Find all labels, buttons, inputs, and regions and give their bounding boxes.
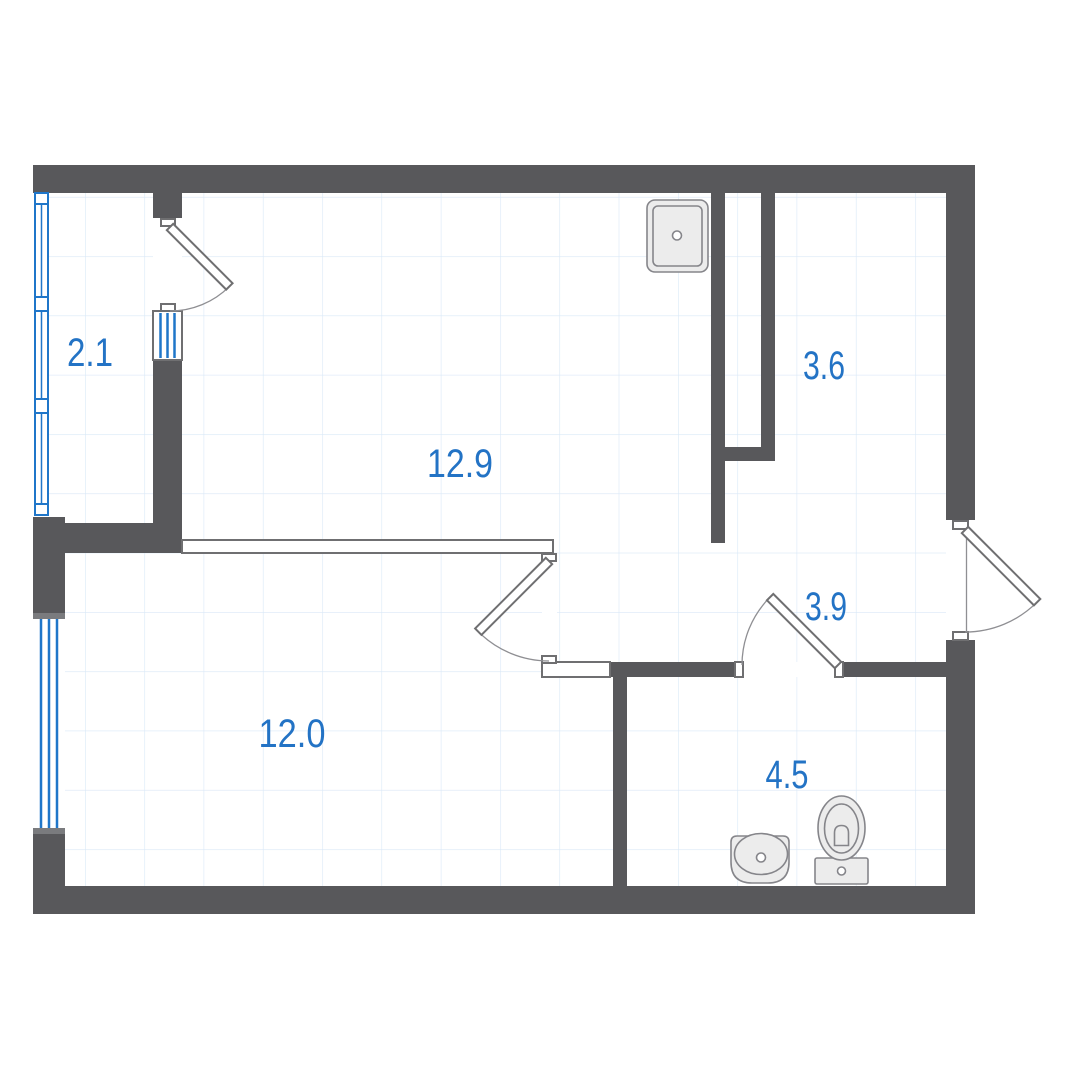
bedroom-partition-wall	[182, 540, 553, 553]
bedroom-doorway-opening	[542, 561, 557, 656]
balcony-door-jamb-bottom	[161, 304, 175, 311]
duct-wall-left	[711, 193, 725, 543]
room-label-living-kitchen: 12.9	[427, 442, 493, 486]
balcony-side-wall	[153, 360, 182, 553]
room-label-bathroom: 4.5	[766, 753, 809, 797]
floor-plan: 2.1 12.9 3.6 3.9 12.0 4.5	[0, 0, 1080, 1080]
wall-right-lower	[946, 640, 975, 914]
balcony-door-window	[153, 311, 182, 360]
wall-right-upper	[946, 193, 975, 520]
toilet-flush-button	[838, 867, 846, 875]
bedroom-door-jamb-bottom	[542, 656, 556, 663]
room-label-balcony: 2.1	[67, 331, 113, 375]
duct-wall-right	[761, 193, 775, 447]
bathroom-top-wall-left	[610, 662, 735, 677]
bathroom-top-wall-right	[843, 662, 946, 677]
floor-plan-svg: 2.1 12.9 3.6 3.9 12.0 4.5	[0, 0, 1080, 1080]
balcony-glazing-mullion-1	[35, 297, 48, 311]
bathroom-left-wall	[613, 662, 627, 886]
hall-opening-frame	[542, 662, 610, 677]
balcony-glazing-cap-top	[35, 193, 48, 204]
balcony-wall-pillar	[153, 193, 182, 218]
balcony-glazing-cap-bottom	[35, 504, 48, 515]
bathroom-doorway-opening	[743, 662, 835, 677]
entry-door-jamb-bottom	[953, 632, 968, 640]
wall-left-lower	[33, 832, 65, 888]
bedroom-window-cap-bottom	[33, 828, 65, 834]
washbasin-icon	[731, 834, 789, 884]
washbasin-drain	[757, 853, 766, 862]
wall-top	[33, 165, 975, 193]
room-label-storage: 3.6	[803, 344, 845, 388]
toilet-icon	[815, 796, 868, 884]
entry-door-jamb-top	[953, 521, 968, 529]
toilet-seat-detail	[835, 826, 849, 846]
kitchen-sink-drain	[673, 231, 682, 240]
room-label-bedroom: 12.0	[259, 712, 326, 756]
balcony-glazing	[35, 193, 48, 515]
balcony-glazing-mullion-2	[35, 399, 48, 413]
bedroom-window-cap-top	[33, 613, 65, 619]
duct-wall-bottom	[711, 447, 775, 461]
room-label-hall: 3.9	[805, 585, 847, 629]
kitchen-sink-icon	[647, 200, 708, 272]
wall-bottom	[33, 886, 975, 914]
